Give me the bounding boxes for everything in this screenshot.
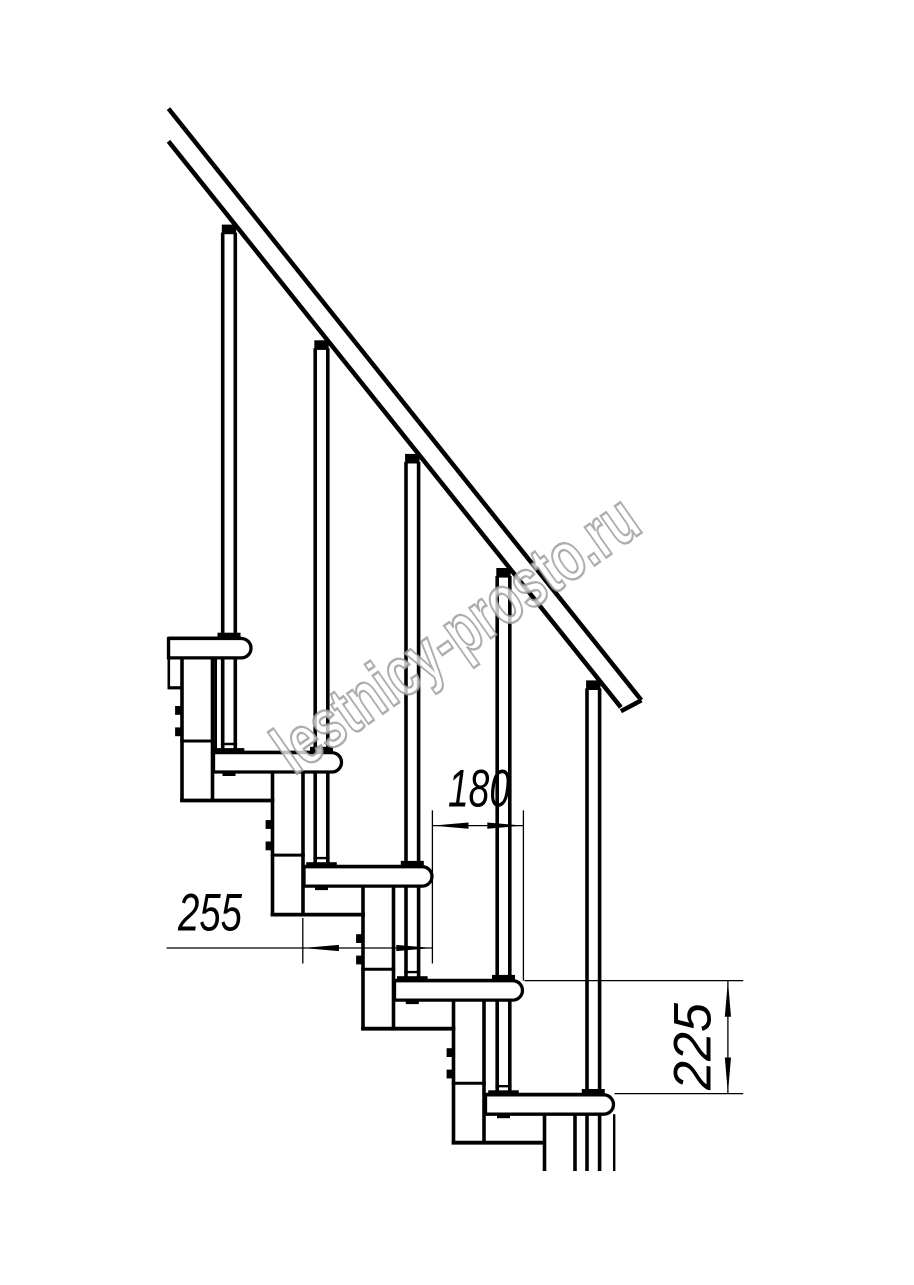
svg-text:225: 225 [664, 1002, 723, 1090]
svg-text:180: 180 [448, 760, 510, 819]
svg-text:255: 255 [177, 884, 242, 943]
